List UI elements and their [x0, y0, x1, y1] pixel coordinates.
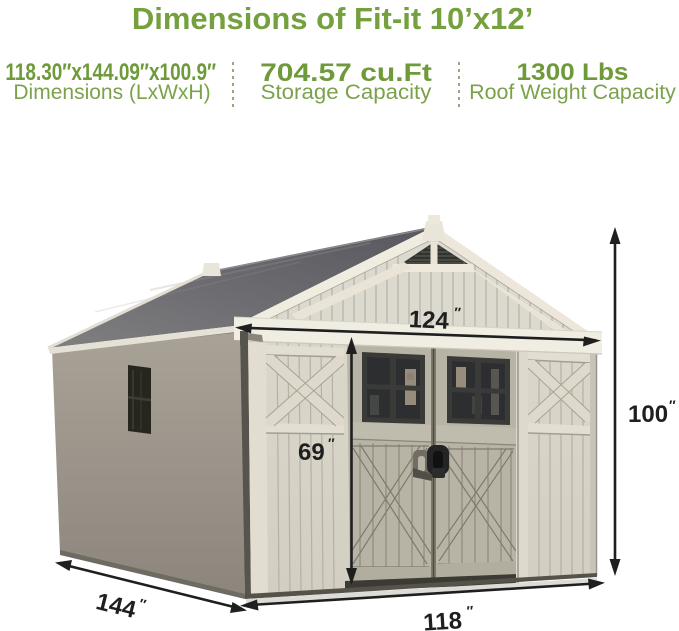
svg-text:″: ″ [137, 595, 148, 612]
svg-text:100: 100 [628, 401, 668, 428]
svg-text:69: 69 [298, 439, 325, 466]
svg-text:118: 118 [422, 607, 462, 631]
svg-text:144: 144 [93, 588, 139, 624]
svg-text:″: ″ [454, 304, 462, 320]
svg-text:124: 124 [408, 306, 450, 335]
svg-text:″: ″ [328, 435, 335, 451]
svg-text:″: ″ [466, 602, 474, 618]
svg-text:″: ″ [669, 397, 676, 413]
